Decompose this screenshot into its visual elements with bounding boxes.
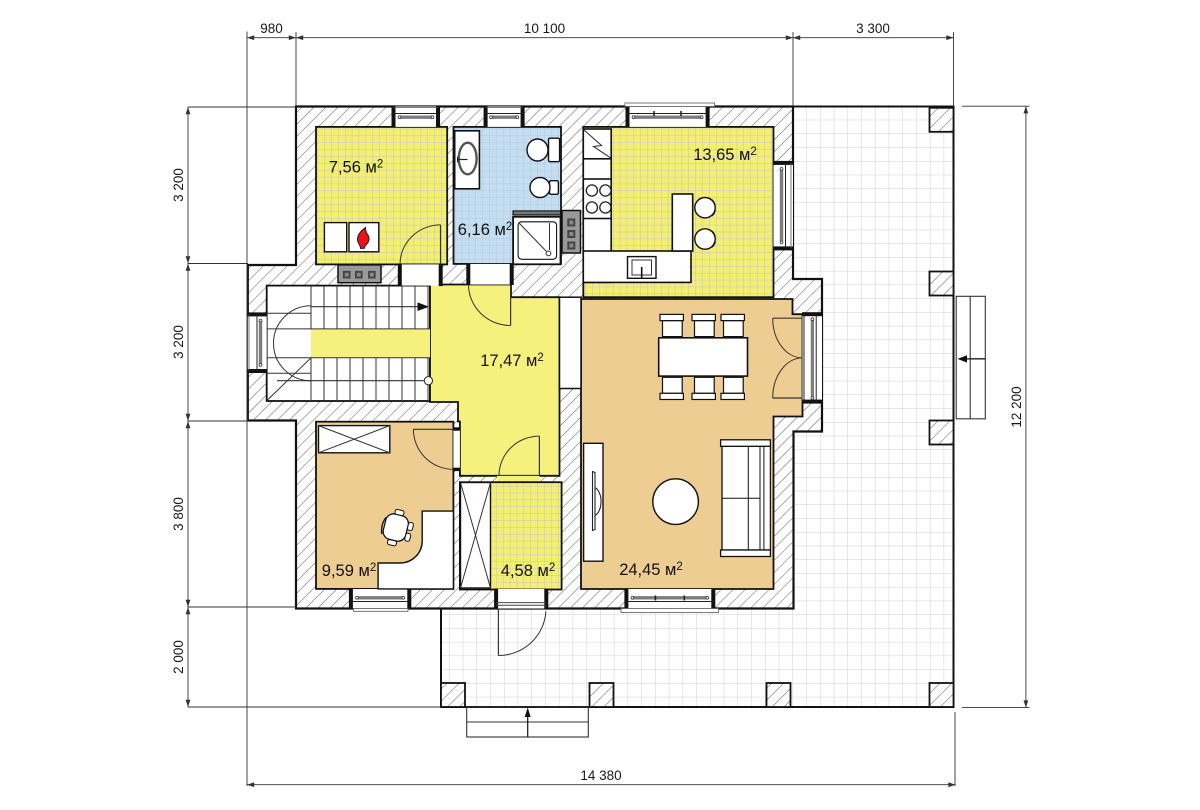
- svg-text:24,45 м2: 24,45 м2: [619, 561, 683, 579]
- svg-text:4,58 м2: 4,58 м2: [501, 562, 555, 580]
- svg-text:9,59 м2: 9,59 м2: [322, 562, 376, 580]
- svg-text:7,56 м2: 7,56 м2: [329, 159, 383, 177]
- svg-text:14 380: 14 380: [580, 768, 621, 783]
- svg-text:12 200: 12 200: [1009, 386, 1024, 427]
- svg-text:10 100: 10 100: [524, 21, 565, 36]
- svg-text:980: 980: [260, 21, 283, 36]
- svg-text:3 800: 3 800: [171, 497, 186, 531]
- svg-text:6,16 м2: 6,16 м2: [458, 221, 512, 239]
- svg-text:3 200: 3 200: [171, 168, 186, 202]
- svg-text:17,47 м2: 17,47 м2: [480, 352, 544, 370]
- svg-text:3 300: 3 300: [856, 21, 890, 36]
- svg-text:3 200: 3 200: [171, 325, 186, 359]
- svg-text:2 000: 2 000: [171, 640, 186, 674]
- svg-text:13,65 м2: 13,65 м2: [693, 146, 757, 164]
